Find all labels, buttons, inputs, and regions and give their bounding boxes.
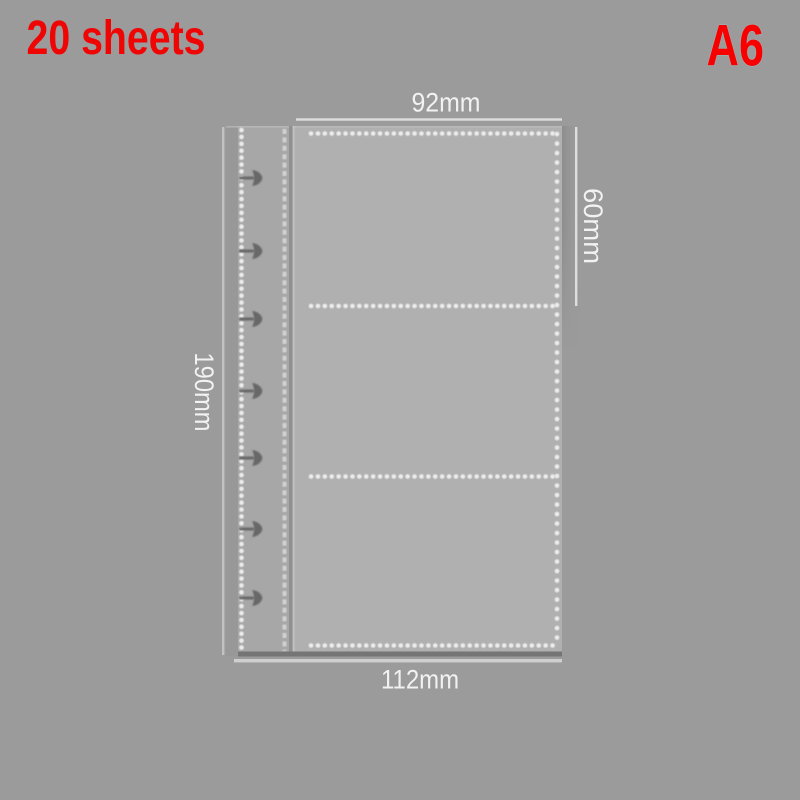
svg-text:A6: A6 [707,14,765,79]
svg-text:190mm: 190mm [189,353,219,432]
svg-text:92mm: 92mm [412,88,481,118]
svg-text:60mm: 60mm [578,188,608,264]
svg-text:20 sheets: 20 sheets [27,11,206,65]
svg-text:112mm: 112mm [381,665,459,695]
